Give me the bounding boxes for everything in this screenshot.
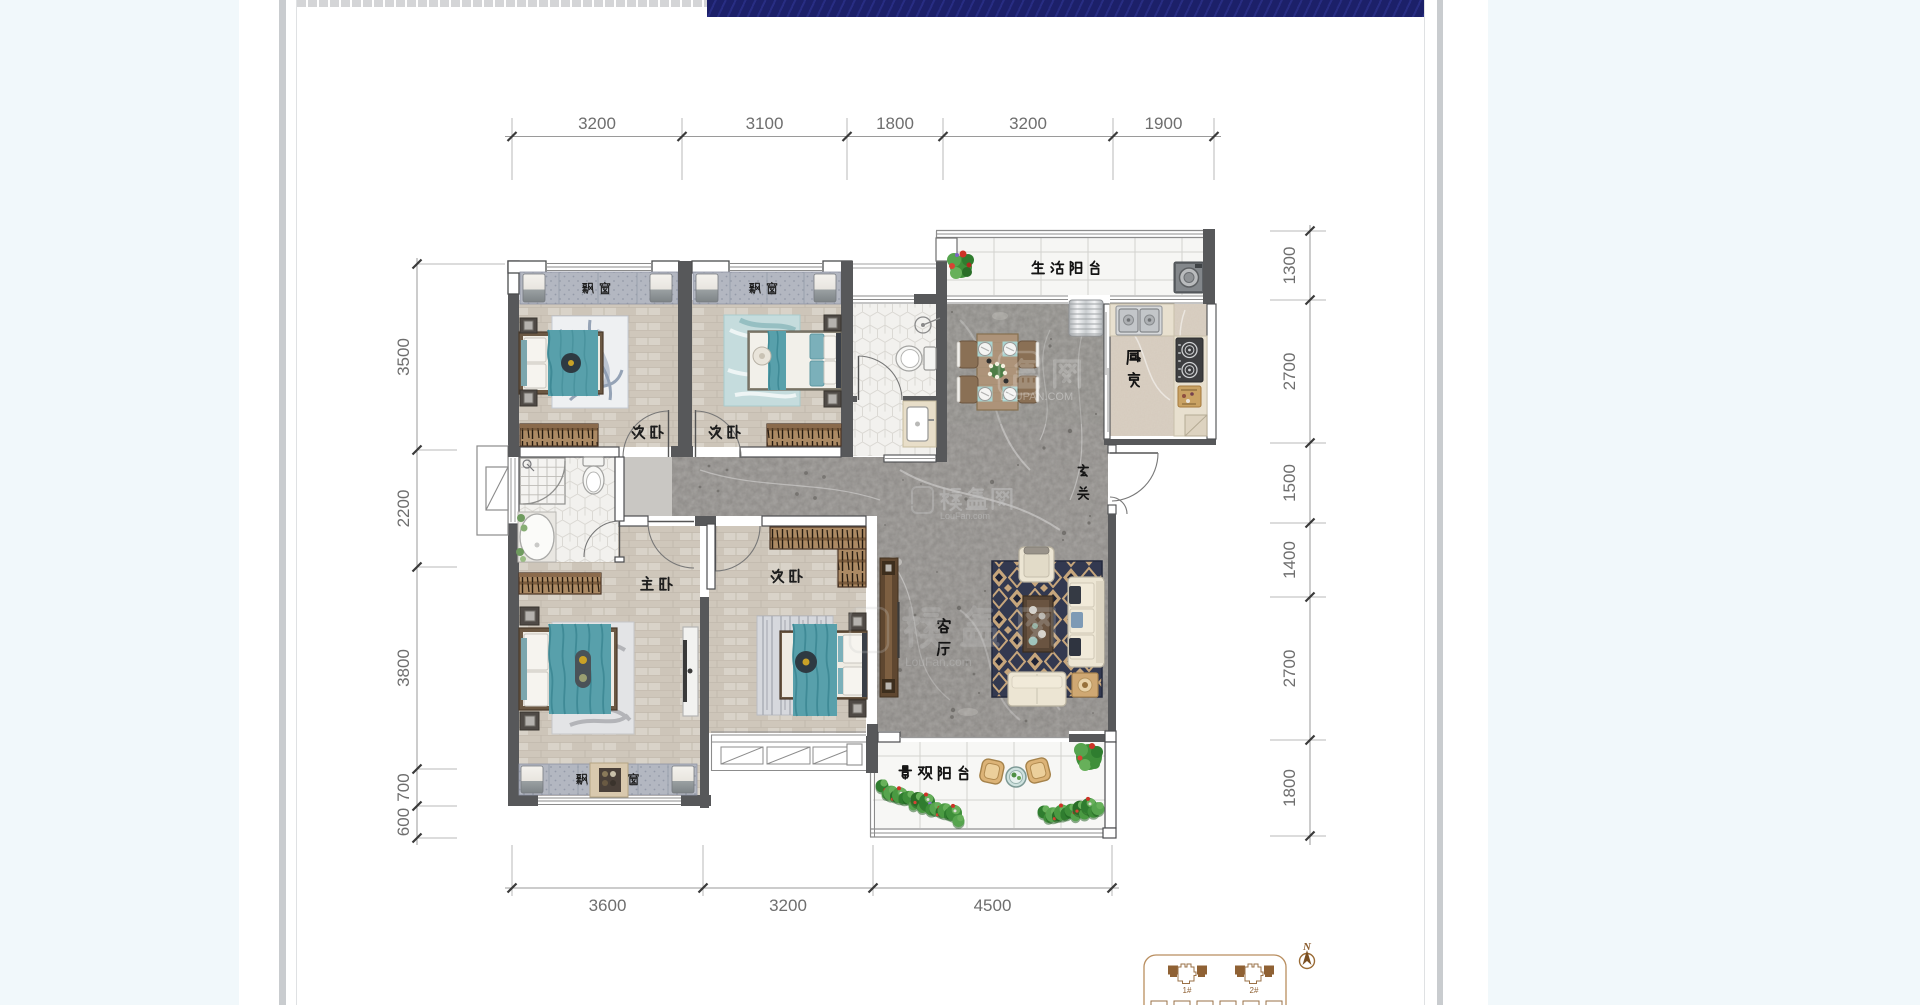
svg-text:1300: 1300 [1280, 247, 1299, 285]
svg-text:LouFan.com: LouFan.com [905, 655, 972, 669]
svg-text:1800: 1800 [1280, 769, 1299, 807]
svg-text:2700: 2700 [1280, 650, 1299, 688]
svg-text:1900: 1900 [1145, 114, 1183, 133]
svg-text:2200: 2200 [394, 490, 413, 528]
svg-text:3600: 3600 [589, 896, 627, 915]
svg-text:700: 700 [394, 773, 413, 801]
svg-text:3200: 3200 [578, 114, 616, 133]
svg-text:3500: 3500 [394, 338, 413, 376]
svg-text:2#: 2# [1250, 986, 1259, 995]
svg-text:LouFan.com: LouFan.com [940, 511, 990, 521]
svg-text:1500: 1500 [1280, 464, 1299, 502]
svg-text:4500: 4500 [974, 896, 1012, 915]
svg-text:1800: 1800 [876, 114, 914, 133]
svg-text:2700: 2700 [1280, 353, 1299, 391]
svg-text:1400: 1400 [1280, 541, 1299, 579]
svg-text:LOUPAN.COM: LOUPAN.COM [1000, 391, 1073, 403]
svg-text:600: 600 [394, 808, 413, 836]
svg-text:3100: 3100 [746, 114, 784, 133]
svg-text:3200: 3200 [1009, 114, 1047, 133]
svg-text:3800: 3800 [394, 649, 413, 687]
svg-text:1#: 1# [1183, 986, 1192, 995]
svg-text:3200: 3200 [769, 896, 807, 915]
svg-text:N: N [1302, 941, 1312, 953]
